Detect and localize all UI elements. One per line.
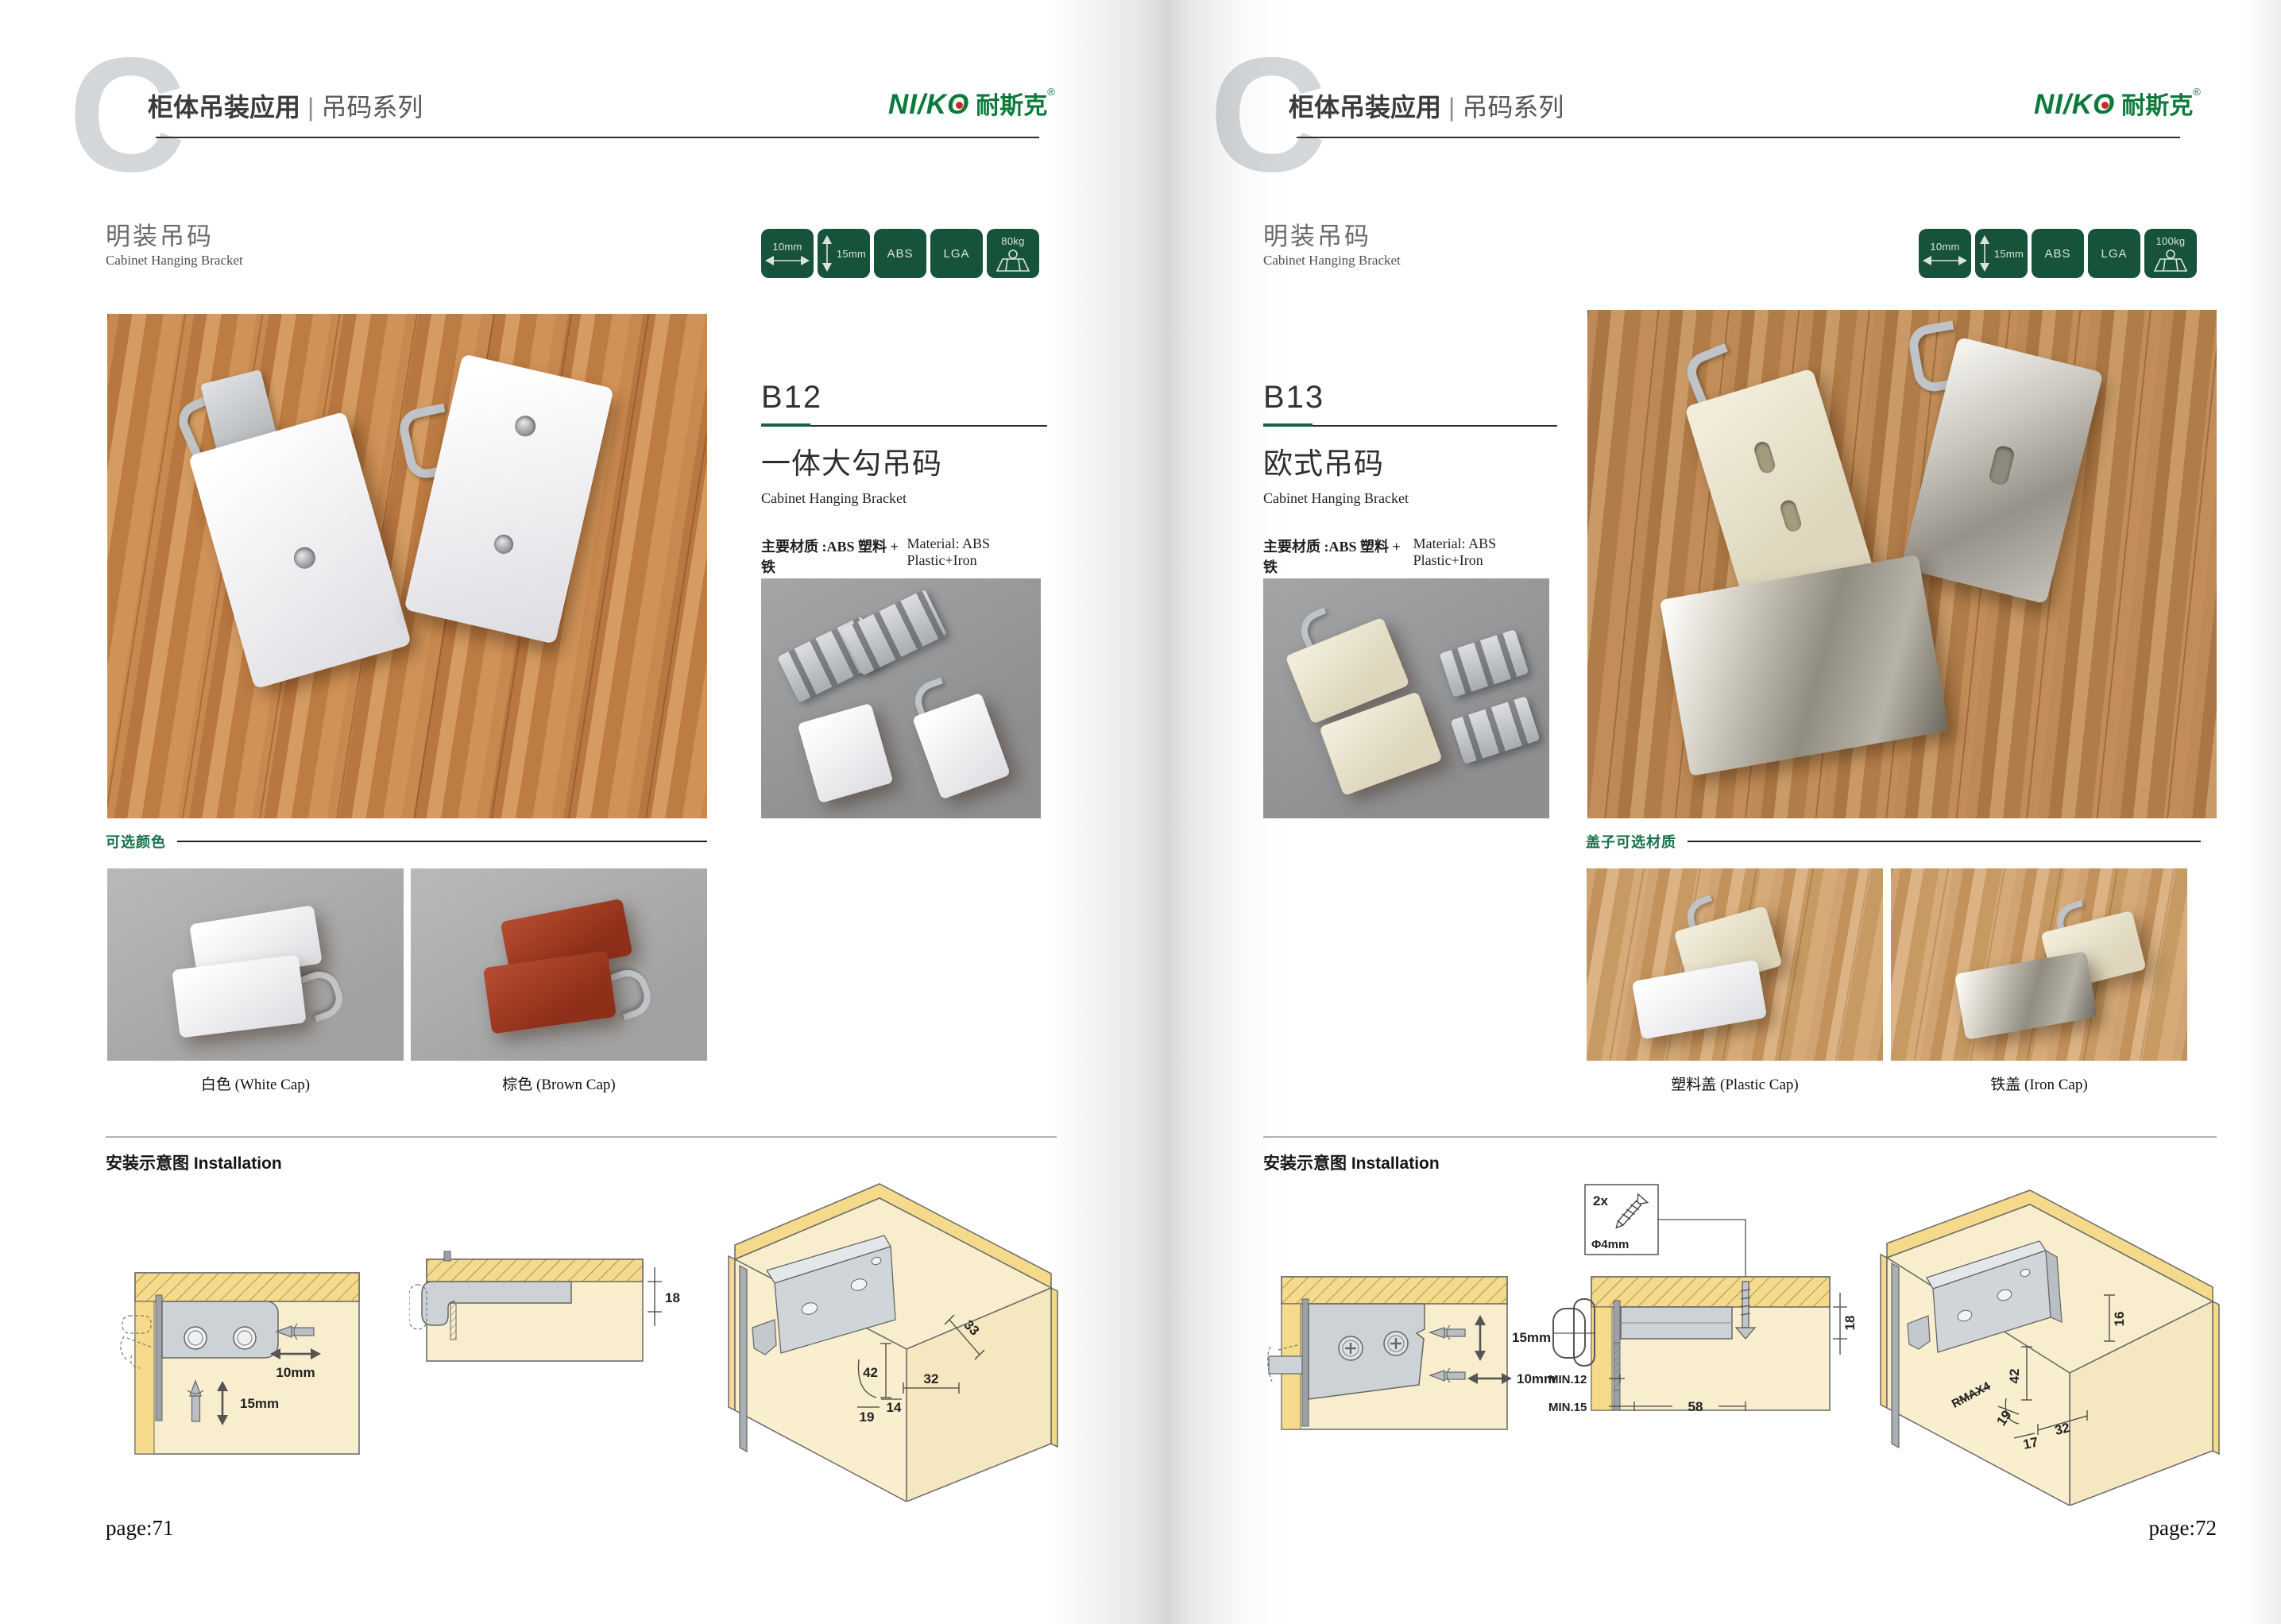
mounting-rail-graphic [1439,629,1529,698]
spec-material-zh: 主要材质 :ABS 塑料 + 铁 [761,536,907,577]
spec-material-zh: 主要材质 :ABS 塑料 + 铁 [1263,536,1413,577]
mounting-rail-graphic [1450,696,1540,764]
badge-depth-label: 10mm [1930,241,1959,253]
dim-label-19: 19 [860,1409,875,1425]
hanging-rail-graphic [740,1266,747,1452]
product-name-en: Cabinet Hanging Bracket [761,490,1047,507]
brand-logo: NI/KO耐斯克® [2034,86,2201,121]
white-bracket-graphic [188,412,412,690]
product-rule [761,422,1047,427]
option-photo-brown [411,868,707,1061]
registered-mark: ® [1047,86,1055,98]
dim-label-58: 58 [1688,1399,1703,1414]
options-title: 盖子可选材质 [1586,831,1676,852]
dim-label-18: 18 [1842,1316,1858,1331]
dim-label-32: 32 [924,1371,939,1386]
badge-load-capacity: 80kg [987,229,1039,278]
white-bracket-graphic [798,703,894,803]
badge-certification: LGA [2088,229,2140,278]
badge-load-label: 100kg [2156,235,2186,247]
badge-height: 15mm [818,229,870,278]
product-photo-detail [1263,578,1549,818]
badge-height-label: 15mm [1994,248,2024,260]
badge-depth-label: 10mm [772,241,802,253]
option-photo-white [107,868,404,1061]
badge-load-capacity: 100kg [2144,229,2197,278]
phillips-screw-icon [1384,1332,1408,1355]
leader-line [1658,1220,1746,1278]
spec-material-row: 主要材质 :ABS 塑料 + 铁 Material: ABS Plastic+I… [761,536,1047,577]
section-title-zh: 明装吊码 [1263,216,1371,252]
install-diagram-section: 2x Φ4mm [1545,1180,1859,1430]
install-diagram-section: 18 [409,1235,687,1378]
mounting-rail-graphic [841,589,947,675]
dim-label-min15: MIN.15 [1548,1401,1587,1414]
options-rule [177,841,707,842]
header-series: 吊码系列 [1462,93,1564,122]
page-number: page:71 [106,1516,173,1541]
section-title-en: Cabinet Hanging Bracket [106,253,243,269]
product-photo-detail [761,578,1041,818]
spec-badges: 10mm 15mm ABS LGA 100kg [1919,229,2197,278]
dim-label-18: 18 [665,1290,680,1305]
header-divider: | [1441,93,1462,122]
option-caption: 棕色 (Brown Cap) [411,1073,707,1094]
product-name-zh: 一体大勾吊码 [761,439,1047,482]
catalog-spread: C 柜体吊装应用|吊码系列 NI/KO耐斯克® 明装吊码 Cabinet Han… [0,0,2281,1624]
product-info-block: B13 欧式吊码 Cabinet Hanging Bracket 主要材质 :A… [1263,380,1557,607]
horizontal-arrow-icon [1923,255,1967,266]
badge-height: 15mm [1975,229,2028,278]
bracket-graphic [1309,1304,1425,1399]
header-category: 柜体吊装应用 [148,93,300,122]
option-photo-plastic [1587,868,1883,1061]
spec-material-row: 主要材质 :ABS 塑料 + 铁 Material: ABS Plastic+I… [1263,536,1557,577]
header-series: 吊码系列 [321,93,423,122]
brand-logo-chinese: 耐斯克 [976,93,1047,119]
screw-diameter-label: Φ4mm [1591,1238,1629,1251]
option-photo-iron [1891,868,2187,1061]
product-name-en: Cabinet Hanging Bracket [1263,490,1557,507]
dim-label-42: 42 [863,1365,878,1380]
badge-material: ABS [2032,229,2084,278]
plastic-cap-graphic [1632,960,1767,1040]
load-trapezoid-icon [994,249,1032,272]
badge-material: ABS [874,229,926,278]
installation-title: 安装示意图 Installation [106,1150,282,1174]
vertical-arrow-icon [1979,235,1990,272]
product-code: B13 [1263,380,1557,416]
dim-label-15mm: 15mm [240,1396,279,1411]
load-trapezoid-icon [2151,249,2190,272]
iron-cover-graphic [1660,555,1949,776]
installation-separator [1263,1136,2217,1138]
spec-material-en: Material: ABS Plastic+Iron [1413,536,1557,577]
registered-mark: ® [2193,86,2201,98]
hanging-rail-graphic [1892,1263,1899,1448]
brand-logo-latin: NI/KO [888,89,969,120]
install-diagram-perspective: 42 32 14 19 33 [711,1164,1061,1502]
product-info-block: B12 一体大勾吊码 Cabinet Hanging Bracket 主要材质 … [761,380,1047,607]
option-caption: 铁盖 (Iron Cap) [1891,1073,2187,1094]
option-caption: 塑料盖 (Plastic Cap) [1587,1073,1883,1094]
options-title: 可选颜色 [106,831,166,852]
product-photo-main [107,314,707,818]
header-category: 柜体吊装应用 [1289,93,1441,122]
dim-lines [648,1267,662,1326]
product-photo-main [1587,310,2217,818]
options-header: 可选颜色 [106,831,707,852]
dim-label-14: 14 [887,1400,902,1415]
installation-title: 安装示意图 Installation [1263,1150,1440,1174]
brand-logo-chinese: 耐斯克 [2121,93,2193,119]
spec-badges: 10mm 15mm ABS LGA 80kg [761,229,1039,278]
badge-certification: LGA [930,229,983,278]
page-edge-shadow [2244,0,2281,1624]
badge-material-label: ABS [887,247,913,261]
brand-logo-latin: NI/KO [2034,89,2115,120]
install-diagram-perspective: 16 42 RMAX4 19 17 32 [1879,1168,2221,1506]
options-header: 盖子可选材质 [1586,831,2201,852]
brown-cap-graphic [483,950,617,1034]
page-number: page:72 [2097,1516,2217,1541]
hook-graphic [1269,1356,1302,1374]
badge-depth: 10mm [761,229,814,278]
badge-material-label: ABS [2044,247,2070,261]
product-name-zh: 欧式吊码 [1263,439,1557,482]
dim-label-16: 16 [2112,1312,2127,1327]
bracket-hook-graphic [300,966,348,1023]
horizontal-arrow-icon [765,255,810,266]
dim-label-min12: MIN.12 [1548,1373,1587,1386]
badge-load-label: 80kg [1001,235,1024,247]
install-diagram-adjustment: 10mm 15mm [119,1255,373,1470]
book-spine-fold [1049,0,1287,1624]
option-caption: 白色 (White Cap) [107,1073,404,1094]
product-code: B12 [761,380,1047,416]
header-rule [156,137,1039,138]
section-title-zh: 明装吊码 [106,216,214,252]
badge-certification-label: LGA [2101,247,2127,261]
spec-material-en: Material: ABS Plastic+Iron [907,536,1047,577]
install-diagram-adjustment: 15mm 10mm [1267,1259,1561,1450]
dim-label-42: 42 [2007,1369,2022,1384]
badge-height-label: 15mm [837,248,866,260]
header-rule [1297,137,2180,138]
page-header-title: 柜体吊装应用|吊码系列 [1289,87,1564,124]
product-rule-accent [1263,423,1313,427]
installation-separator [106,1136,1057,1138]
dim-label-17: 17 [2022,1434,2039,1452]
badge-certification-label: LGA [943,247,969,261]
brand-logo: NI/KO耐斯克® [888,86,1055,121]
badge-depth: 10mm [1919,229,1971,278]
iron-cap-graphic [1954,951,2097,1040]
product-rule [1263,422,1557,427]
options-rule [1688,841,2201,842]
screw-count-label: 2x [1593,1193,1608,1208]
page-header-title: 柜体吊装应用|吊码系列 [148,87,423,124]
euro-hook-outline [1553,1299,1595,1366]
header-divider: | [300,93,321,122]
white-bracket-graphic [404,354,613,644]
vertical-arrow-icon [822,235,833,272]
phillips-screw-icon [1339,1336,1363,1360]
product-rule-accent [761,423,810,427]
white-cap-graphic [172,955,306,1038]
dim-label-10mm: 10mm [276,1365,315,1380]
section-title-en: Cabinet Hanging Bracket [1263,253,1401,269]
